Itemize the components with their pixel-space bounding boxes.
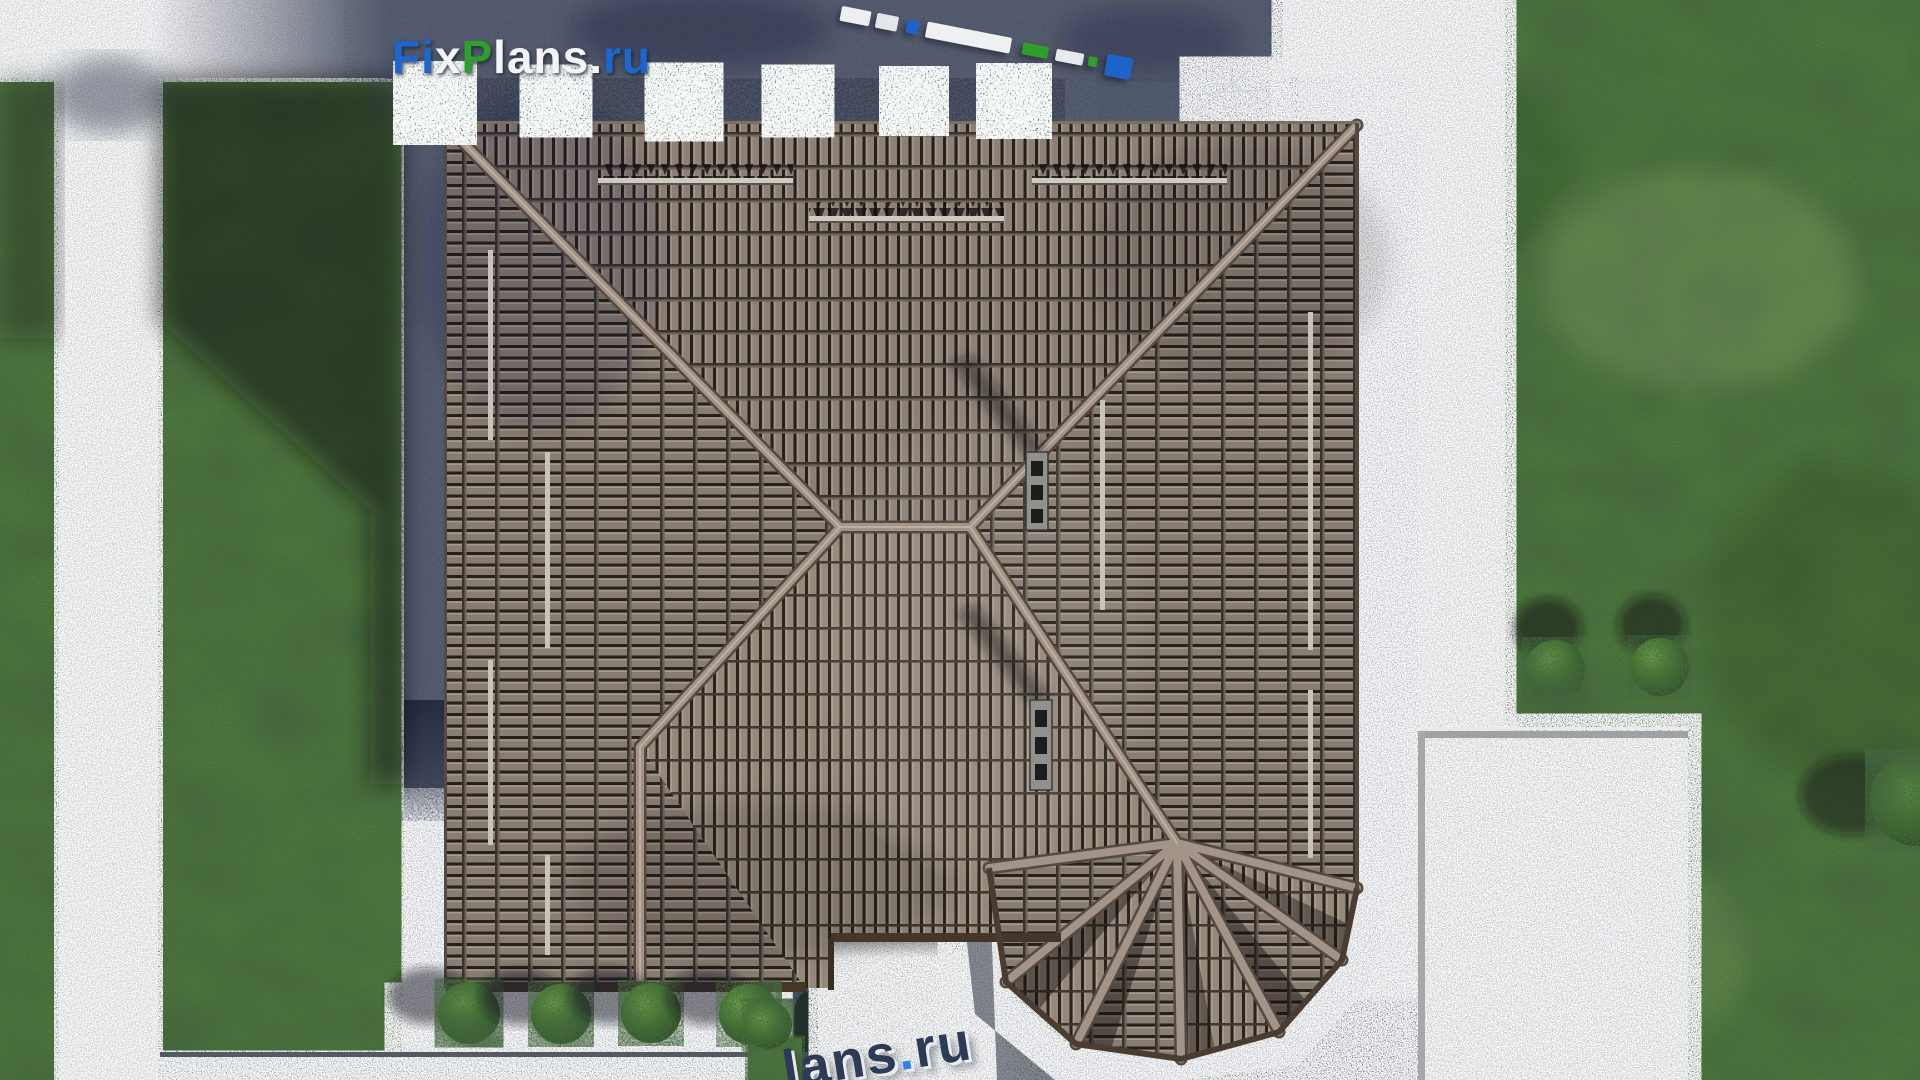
logo-part: lans <box>493 30 589 84</box>
roof <box>420 90 1390 1059</box>
sign-block <box>875 12 899 31</box>
watermark-part: ru <box>910 1011 977 1079</box>
stone-slab <box>1185 60 1290 125</box>
left-sidewalk <box>59 0 158 1080</box>
platform <box>1418 727 1688 1080</box>
brand-logo: FixPlans.ru <box>392 30 651 84</box>
sign-block <box>1104 54 1134 81</box>
aerial-render-viewport: FixPlans.ru lans.ru <box>0 0 1920 1080</box>
logo-part: . <box>589 30 603 84</box>
sign-block <box>1055 49 1085 66</box>
scene-svg <box>0 0 1920 1080</box>
logo-part: ru <box>603 30 651 84</box>
sign-block <box>905 19 919 34</box>
sign-block <box>1087 56 1098 68</box>
sign-block <box>1021 42 1049 59</box>
gravel-top-corner <box>1302 77 1408 123</box>
logo-part: x <box>435 30 462 84</box>
logo-part: Fi <box>392 30 435 84</box>
logo-part: P <box>461 30 493 84</box>
sign-block <box>839 5 871 25</box>
